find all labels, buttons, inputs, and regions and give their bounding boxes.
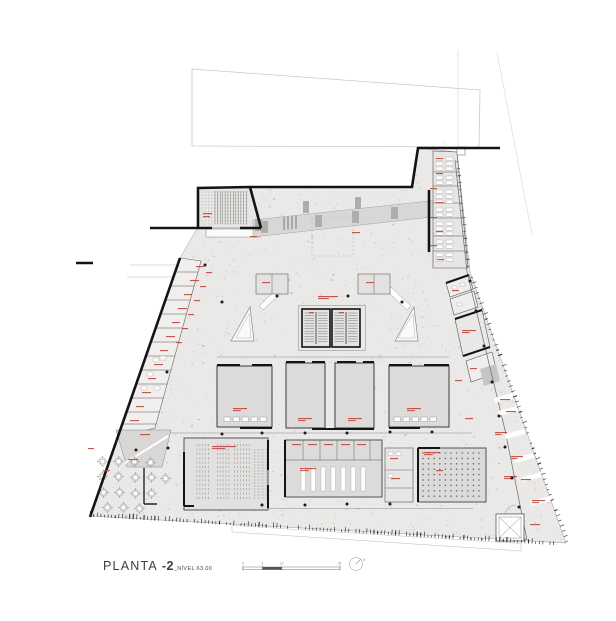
cafe-table xyxy=(101,490,106,495)
column-dot xyxy=(221,301,224,304)
room-label-mark xyxy=(88,448,94,449)
room-label-mark xyxy=(292,444,301,445)
room-label-mark xyxy=(437,259,444,260)
room-label-mark xyxy=(436,470,443,471)
column-dot xyxy=(261,504,264,507)
room-label-mark xyxy=(436,231,443,232)
room-label-mark xyxy=(511,456,523,457)
scale-number: 0 xyxy=(242,562,244,566)
cafe-table xyxy=(149,475,154,480)
cafe-table xyxy=(121,505,126,510)
room-label-mark xyxy=(194,300,200,301)
column-dot xyxy=(135,449,138,452)
column-dot xyxy=(518,506,521,509)
cafe-table xyxy=(117,490,122,495)
column-dot xyxy=(304,432,307,435)
floor-plan-sheet: PLANTA -2_NÍVEL 63.00 051025 N xyxy=(0,0,616,616)
room-label-mark xyxy=(166,336,175,337)
annex-vestibule xyxy=(206,229,260,237)
fixture xyxy=(396,452,401,456)
cafe-table xyxy=(163,476,168,481)
room-label-mark xyxy=(298,418,312,419)
cafe-table xyxy=(149,491,154,496)
column-dot xyxy=(261,432,264,435)
room-label-mark xyxy=(160,350,168,351)
fixture xyxy=(457,303,462,306)
column-dot xyxy=(475,310,478,313)
room-label-mark xyxy=(130,420,139,421)
scale-number: 5 xyxy=(262,562,264,566)
room-label-mark xyxy=(136,406,144,407)
cafe-table xyxy=(100,459,105,464)
room-label-mark xyxy=(178,308,187,309)
north-arrow-icon: N xyxy=(350,558,367,571)
fixture xyxy=(460,283,465,286)
room-label-mark xyxy=(357,444,366,445)
cafe-table xyxy=(116,474,121,479)
room-label-mark xyxy=(436,158,443,159)
central-stair-cores xyxy=(299,306,366,351)
room-label-mark xyxy=(203,216,210,217)
column-dot xyxy=(504,446,507,449)
column-dot xyxy=(167,447,170,450)
column-dot xyxy=(304,504,307,507)
cafe-table xyxy=(133,491,138,496)
room-label-mark xyxy=(455,380,462,381)
room-label-mark xyxy=(203,213,212,214)
cafe-table xyxy=(116,459,121,464)
cafe-table xyxy=(148,460,153,465)
column-dot xyxy=(389,503,392,506)
column-dot xyxy=(483,345,486,348)
room-label-mark xyxy=(140,434,150,435)
room-label-mark xyxy=(504,476,517,477)
room-label-mark xyxy=(339,312,344,313)
room-label-mark xyxy=(190,280,199,281)
room-label-mark xyxy=(470,368,477,369)
cafe-table xyxy=(133,475,138,480)
room-label-mark xyxy=(212,446,236,447)
room-label-mark xyxy=(430,217,437,218)
column-dot xyxy=(389,431,392,434)
column-dot xyxy=(511,477,514,480)
room-label-mark xyxy=(430,188,437,189)
cafe-table xyxy=(137,506,142,511)
room-label-mark xyxy=(495,432,507,433)
room-label-mark xyxy=(206,272,212,273)
scale-number: 25 xyxy=(338,562,342,566)
column-dot xyxy=(166,371,169,374)
fixture xyxy=(452,286,457,289)
room-label-mark xyxy=(142,392,151,393)
room-label-mark xyxy=(521,479,531,480)
room-label-mark xyxy=(188,314,194,315)
site-boundary-line xyxy=(497,52,532,235)
room-label-mark xyxy=(341,444,350,445)
north-label: N xyxy=(363,558,366,562)
title-block: PLANTA -2_NÍVEL 63.00 051025 N xyxy=(103,558,366,574)
room-label-mark xyxy=(172,322,180,323)
site-block-outline xyxy=(192,69,480,147)
room-label-mark xyxy=(176,342,182,343)
fixture xyxy=(388,452,393,456)
room-label-mark xyxy=(366,282,374,283)
column-dot xyxy=(498,415,501,418)
room-label-mark xyxy=(200,286,206,287)
plan-title: PLANTA -2_NÍVEL 63.00 xyxy=(103,559,212,573)
column-dot xyxy=(491,381,494,384)
room-label-mark xyxy=(532,500,545,501)
exterior-steps xyxy=(127,265,176,277)
column-dot xyxy=(346,503,349,506)
room-label-mark xyxy=(318,296,338,297)
room-label-mark xyxy=(348,418,362,419)
room-label-mark xyxy=(308,444,317,445)
room-label-mark xyxy=(452,290,459,291)
room-label-mark xyxy=(500,399,510,400)
column-dot xyxy=(276,295,279,298)
room-label-mark xyxy=(462,330,476,331)
room-label-mark xyxy=(148,378,156,379)
column-dot xyxy=(347,295,350,298)
room-label-mark xyxy=(184,294,192,295)
room-label-mark xyxy=(436,173,443,174)
room-label-mark xyxy=(407,408,421,409)
room-label-mark xyxy=(324,444,333,445)
column-dot xyxy=(221,433,224,436)
scale-bar: 051025 xyxy=(242,562,341,571)
room-label-mark xyxy=(233,408,247,409)
room-label-mark xyxy=(506,411,516,412)
room-label-mark xyxy=(352,232,360,233)
column-dot xyxy=(401,301,404,304)
room-label-mark xyxy=(128,459,138,460)
room-label-mark xyxy=(250,236,257,237)
room-label-mark xyxy=(436,202,443,203)
room-label-mark xyxy=(430,245,437,246)
column-dot xyxy=(346,432,349,435)
scale-number: 10 xyxy=(280,562,284,566)
column-dot xyxy=(431,431,434,434)
room-label-mark xyxy=(182,328,188,329)
room-label-mark xyxy=(103,470,110,471)
room-label-mark xyxy=(424,452,440,453)
room-label-mark xyxy=(391,478,400,479)
room-label-mark xyxy=(262,282,270,283)
fixture xyxy=(388,474,393,478)
room-label-mark xyxy=(465,418,473,419)
floor-plan-drawing: PLANTA -2_NÍVEL 63.00 051025 N xyxy=(0,0,616,616)
room-label-mark xyxy=(530,524,540,525)
room-label-mark xyxy=(154,364,163,365)
room-label-mark xyxy=(196,266,204,267)
room-label-mark xyxy=(309,312,314,313)
room-label-mark xyxy=(300,468,316,469)
column-dot xyxy=(204,264,207,267)
room-label-mark xyxy=(390,458,398,459)
column-dot xyxy=(469,280,472,283)
cafe-table xyxy=(105,505,110,510)
